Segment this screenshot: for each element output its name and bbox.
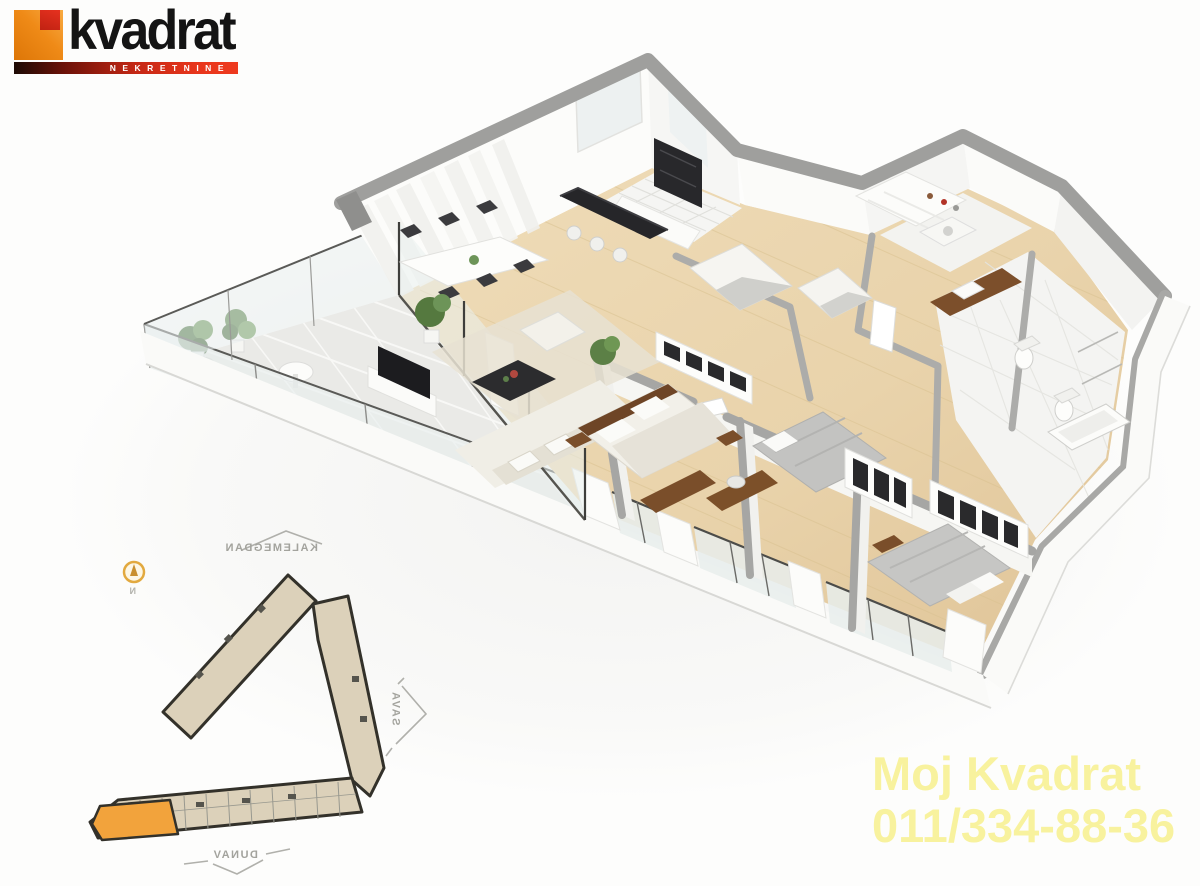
map-label-dunav: DUNAV — [200, 849, 270, 861]
kvadrat-logo: kvadrat NEKRETNINE — [12, 6, 252, 78]
highlighted-unit — [92, 800, 178, 840]
contact-phone: 011/334-88-36 — [872, 800, 1175, 852]
map-label-north: N — [128, 586, 136, 596]
contact-block: Moj Kvadrat 011/334-88-36 — [872, 748, 1175, 852]
logo-tagline-bar: NEKRETNINE — [14, 62, 238, 74]
logo-tagline-text: NEKRETNINE — [110, 63, 238, 73]
north-compass-icon — [124, 562, 144, 582]
map-label-kalemegdan: KALEMEGDAN — [196, 542, 346, 554]
flyer-canvas: kvadrat NEKRETNINE KALEMEGDAN SAVA DUNAV… — [0, 0, 1200, 886]
logo-brand-text: kvadrat — [68, 0, 234, 62]
logo-red-square-icon — [40, 10, 60, 30]
map-label-sava: SAVA — [389, 691, 401, 726]
contact-label: Moj Kvadrat — [872, 748, 1175, 800]
